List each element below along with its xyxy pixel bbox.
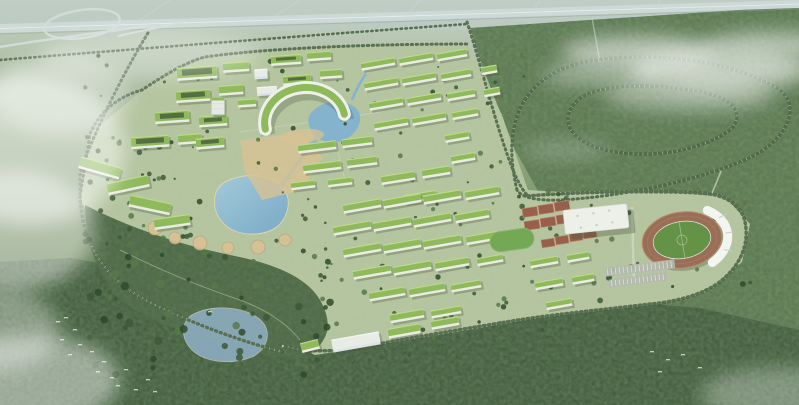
green-roof-building: [176, 89, 213, 106]
green-roof-building: [131, 135, 172, 152]
tree: [454, 85, 458, 89]
tree: [118, 235, 122, 239]
tennis-court: [522, 207, 538, 218]
tree: [501, 304, 506, 309]
tree: [486, 102, 490, 106]
tree: [113, 297, 117, 301]
tennis-court: [538, 204, 554, 215]
tree: [257, 161, 261, 165]
green-roof-building: [271, 54, 304, 69]
tree: [314, 205, 317, 208]
green-roof-building: [307, 51, 334, 64]
tree: [153, 178, 156, 181]
green-roof-building: [196, 136, 227, 152]
tree: [546, 189, 551, 194]
tennis-court: [555, 235, 569, 245]
tree: [125, 319, 133, 327]
tree: [530, 280, 534, 284]
tree: [258, 335, 262, 339]
tree: [671, 285, 674, 288]
tree: [467, 181, 469, 183]
tree: [492, 202, 495, 205]
tree: [181, 234, 186, 239]
tree: [205, 130, 209, 134]
tree: [380, 287, 383, 290]
green-roof-building: [155, 110, 192, 127]
tree: [186, 277, 191, 282]
aerial-rendering: [0, 0, 799, 405]
tree: [540, 328, 544, 332]
tree: [147, 172, 152, 177]
tree: [478, 151, 483, 156]
tree: [150, 356, 156, 362]
tree: [301, 319, 306, 324]
tree: [472, 292, 476, 296]
tree: [111, 270, 119, 278]
tree: [116, 313, 123, 320]
tree: [609, 236, 614, 241]
tree: [743, 202, 747, 206]
tree: [127, 227, 132, 232]
tree: [547, 328, 552, 333]
tree: [313, 333, 319, 339]
tree: [87, 293, 95, 301]
tree: [274, 167, 278, 171]
tree: [616, 191, 619, 194]
tree: [353, 237, 357, 241]
tree: [320, 279, 323, 282]
tree: [597, 298, 603, 304]
tree: [160, 253, 164, 257]
tree: [520, 52, 523, 55]
scene-canvas: [0, 0, 799, 405]
tree: [100, 316, 108, 324]
tree: [523, 75, 526, 78]
tree: [250, 312, 255, 317]
tree: [326, 266, 329, 269]
plaza-circle: [193, 236, 207, 250]
tree: [493, 81, 497, 85]
tree: [565, 195, 569, 199]
tree: [590, 204, 593, 207]
tree: [669, 187, 675, 193]
tree: [431, 207, 435, 211]
green-roof-building: [320, 69, 345, 82]
tree: [324, 222, 327, 225]
tree: [295, 362, 300, 367]
tree: [125, 254, 132, 261]
tree: [318, 273, 323, 278]
tree: [499, 160, 503, 164]
cloud: [40, 30, 260, 80]
tree: [154, 337, 162, 345]
tree: [681, 300, 685, 304]
tree: [222, 343, 228, 349]
green-roof-building: [238, 98, 259, 110]
tree: [320, 297, 325, 302]
tree: [344, 122, 347, 125]
tree: [502, 296, 507, 301]
tree: [489, 164, 493, 168]
tree: [178, 253, 185, 260]
plaza-circle: [169, 232, 181, 244]
plaza-circle: [251, 240, 265, 254]
tree: [105, 242, 108, 245]
tree: [263, 314, 270, 321]
tree: [280, 69, 285, 74]
tree: [241, 305, 247, 311]
tree: [161, 316, 165, 320]
tree: [362, 289, 368, 295]
tree: [161, 175, 166, 180]
tree: [170, 310, 174, 314]
tree: [522, 265, 525, 268]
tree: [269, 289, 273, 293]
tree: [340, 278, 344, 282]
tree: [131, 259, 139, 267]
tree: [435, 274, 440, 279]
tree: [239, 296, 244, 301]
tree: [477, 253, 482, 258]
tree: [748, 281, 752, 285]
tree: [236, 348, 243, 355]
tree: [595, 239, 599, 243]
tree: [236, 354, 243, 361]
tree: [95, 289, 102, 296]
tree: [437, 66, 439, 68]
tree: [282, 191, 284, 193]
tree: [305, 365, 310, 370]
tree: [312, 254, 317, 259]
cloud: [540, 63, 660, 87]
tree: [303, 216, 308, 221]
tree: [207, 253, 212, 258]
tree: [180, 325, 188, 333]
tree: [128, 213, 134, 219]
tree: [174, 178, 176, 180]
tree: [127, 264, 131, 268]
tree: [399, 131, 402, 134]
tree: [518, 144, 522, 148]
tree: [222, 254, 228, 260]
tennis-court: [541, 238, 555, 248]
tree: [253, 282, 260, 289]
tree: [323, 305, 328, 310]
tree: [517, 195, 521, 199]
tree: [239, 329, 246, 336]
tree: [496, 303, 500, 307]
tree: [107, 295, 112, 300]
cloud: [520, 141, 610, 159]
tree: [87, 335, 93, 341]
tree: [548, 226, 552, 230]
tree: [323, 275, 327, 279]
tree: [197, 199, 203, 205]
tree: [499, 336, 503, 340]
tree: [398, 153, 403, 158]
tree: [346, 88, 350, 92]
tree: [431, 335, 436, 340]
tree: [325, 259, 331, 265]
tree: [314, 357, 320, 363]
tree: [740, 281, 746, 287]
tree: [324, 247, 327, 250]
tree: [334, 321, 339, 326]
tree: [142, 247, 146, 251]
tree: [307, 198, 309, 200]
tree: [160, 235, 166, 241]
tree: [499, 321, 502, 324]
tree: [324, 324, 331, 331]
tree: [256, 138, 260, 142]
tree: [233, 322, 240, 329]
tree: [98, 208, 103, 213]
tree: [301, 249, 306, 254]
tree: [132, 250, 139, 257]
tree: [477, 320, 480, 323]
tree: [163, 80, 166, 83]
green-roof-building: [219, 84, 246, 98]
tree: [121, 282, 129, 290]
tree: [301, 214, 304, 217]
tree: [151, 365, 156, 370]
tree: [157, 176, 162, 181]
plaza-circle: [279, 234, 291, 246]
plaza-circle: [222, 242, 234, 254]
tree: [274, 239, 278, 243]
tree: [365, 180, 370, 185]
tennis-court: [540, 217, 556, 228]
tree: [326, 299, 333, 306]
tree: [556, 192, 560, 196]
tree: [295, 303, 303, 311]
tree: [421, 108, 424, 111]
tower-building: [212, 98, 227, 118]
tree: [100, 252, 107, 259]
tree: [212, 283, 219, 290]
tree: [300, 371, 307, 378]
tree: [97, 236, 103, 242]
tree: [128, 241, 133, 246]
tree: [251, 259, 256, 264]
tree: [156, 280, 164, 288]
tree: [504, 301, 508, 305]
tree: [142, 224, 145, 227]
